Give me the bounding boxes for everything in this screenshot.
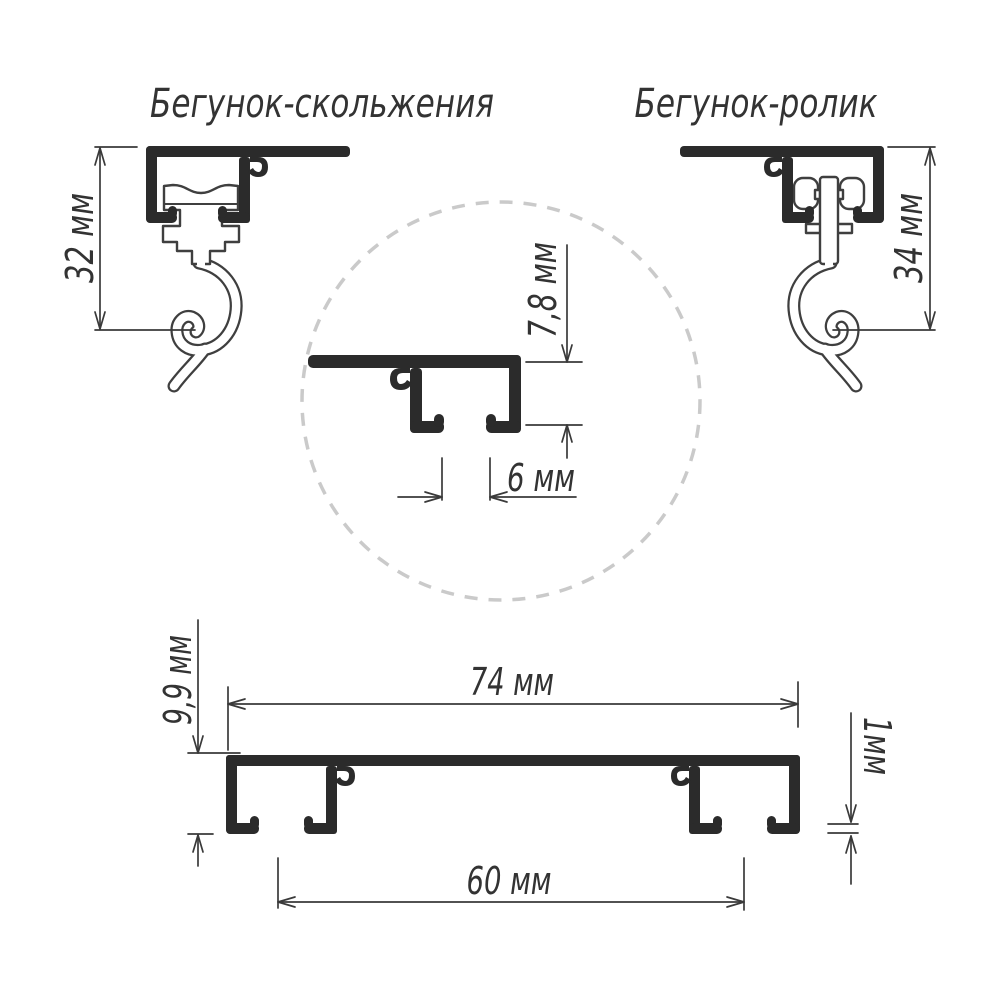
slider-hook <box>177 263 236 350</box>
curtain-rail-diagram: Бегунок-скольжения Бегунок-ролик <box>0 0 1000 1000</box>
dim-label-channel-gap: 6 мм <box>507 456 575 500</box>
full-rail-profile <box>226 755 800 834</box>
dim-label-channel-height: 7,8 мм <box>521 242 565 338</box>
dim-label-slider-height: 32 мм <box>58 193 102 283</box>
dim-label-profile-width: 74 мм <box>470 660 554 704</box>
roller-runner-drawing <box>680 146 884 386</box>
roller-stem <box>820 177 838 264</box>
dim-label-roller-height: 34 мм <box>887 193 931 283</box>
slider-body <box>163 185 239 264</box>
dim-label-wall-thickness: 1мм <box>855 717 899 775</box>
dim-label-channels-distance: 60 мм <box>467 859 552 903</box>
technical-drawing-canvas: Бегунок-скольжения Бегунок-ролик <box>0 0 1000 1000</box>
title-roller-runner: Бегунок-ролик <box>635 81 878 127</box>
slider-runner-drawing <box>146 146 350 386</box>
detail-zoom-circle <box>302 202 700 600</box>
detail-rail-profile <box>308 355 521 433</box>
title-slider-runner: Бегунок-скольжения <box>150 81 494 127</box>
dim-wall-thickness <box>828 713 858 884</box>
profile-detail-view: 7,8 мм 6 мм <box>302 202 700 600</box>
dim-label-profile-height: 9,9 мм <box>156 635 200 725</box>
roller-hook <box>794 263 853 350</box>
